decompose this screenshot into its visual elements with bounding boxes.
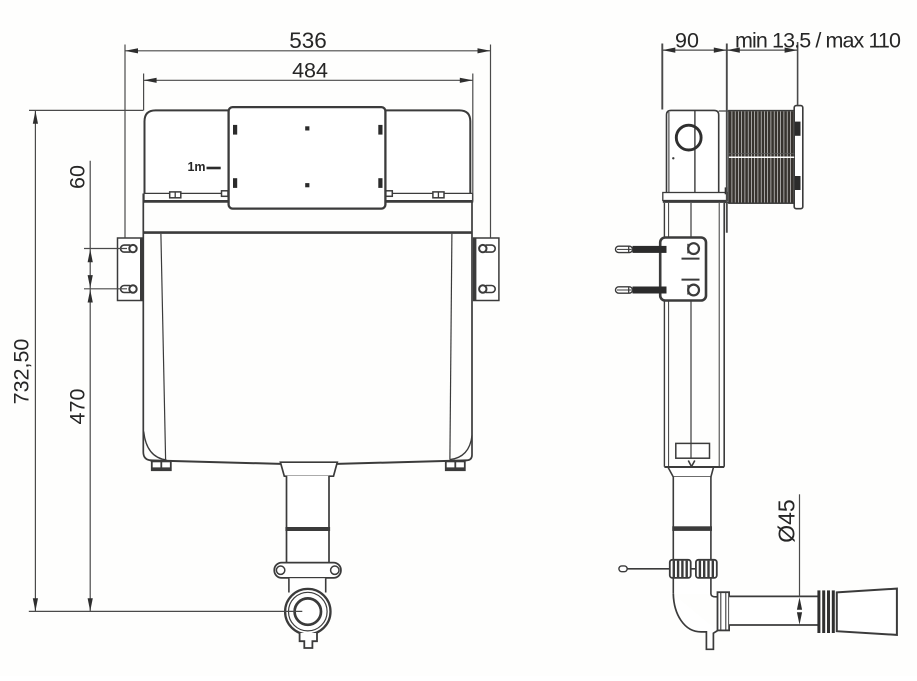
svg-text:Ø45: Ø45 bbox=[774, 499, 800, 542]
svg-text:90: 90 bbox=[675, 29, 699, 53]
svg-text:536: 536 bbox=[289, 28, 327, 53]
svg-text:60: 60 bbox=[66, 165, 90, 189]
svg-text:732,50: 732,50 bbox=[10, 339, 34, 405]
svg-text:min 13.5 / max 110: min 13.5 / max 110 bbox=[735, 29, 901, 53]
svg-text:1m: 1m bbox=[187, 160, 205, 174]
svg-text:484: 484 bbox=[292, 59, 328, 83]
svg-text:470: 470 bbox=[66, 389, 90, 425]
